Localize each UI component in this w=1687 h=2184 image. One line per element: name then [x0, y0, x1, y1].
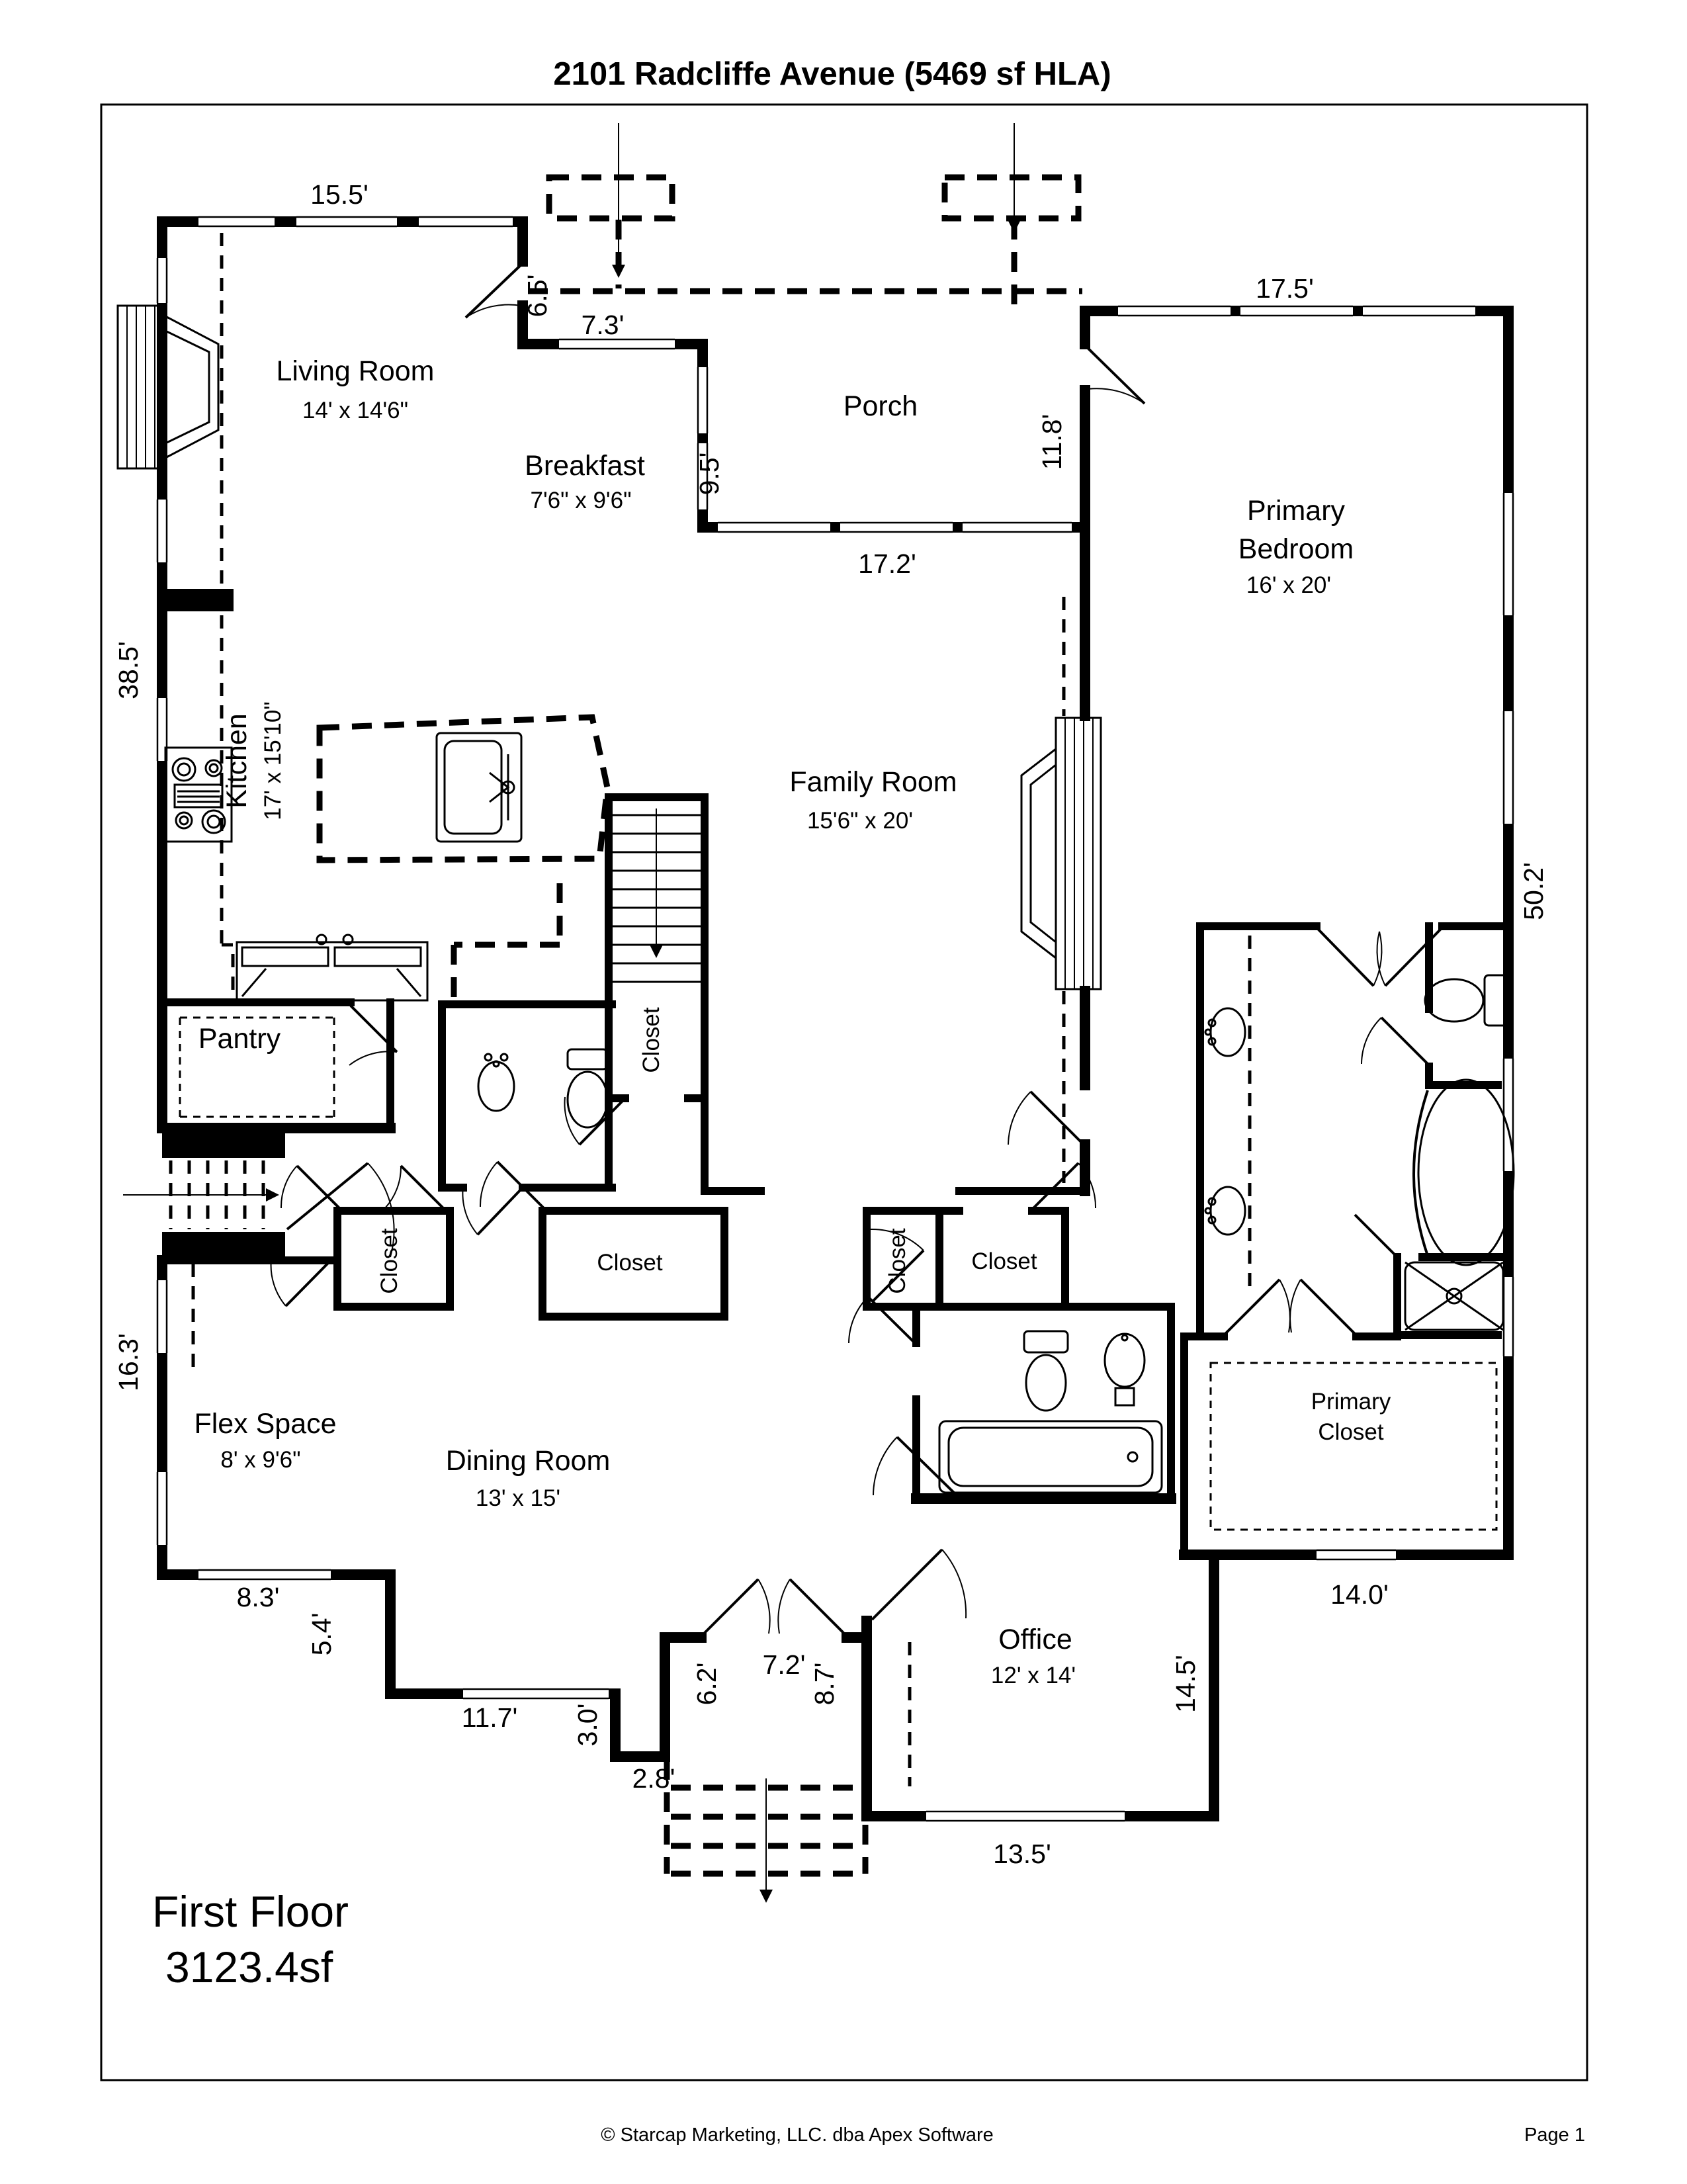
dim-foyer-width: 7.2'	[763, 1649, 806, 1680]
label-porch: Porch	[844, 390, 918, 422]
dim-porch-right: 11.8'	[1037, 414, 1067, 470]
floor-summary-line1: First Floor	[152, 1887, 349, 1936]
label-primary-bedroom-1: Primary	[1247, 495, 1346, 527]
label-closet-office-right: Closet	[971, 1248, 1037, 1274]
label-closet-hall-mid: Closet	[597, 1250, 662, 1276]
family-fireplace-icon	[1021, 718, 1101, 989]
dim-foyer-left: 6.2'	[691, 1663, 722, 1706]
label-dining-dims: 13' x 15'	[476, 1485, 560, 1511]
powder-sink-icon	[478, 1054, 514, 1111]
dim-breakfast-right: 9.5'	[694, 453, 724, 496]
label-office-dims: 12' x 14'	[991, 1663, 1076, 1688]
hallbath-toilet-icon	[1024, 1331, 1068, 1411]
label-kitchen: Kitchen	[221, 713, 253, 808]
dim-entry-jog-vert: 3.0'	[572, 1704, 603, 1747]
label-kitchen-dims: 17' x 15'10"	[260, 701, 286, 820]
doors	[271, 263, 1441, 1635]
label-breakfast-dims: 7'6" x 9'6"	[530, 488, 631, 513]
label-flex-space: Flex Space	[194, 1408, 336, 1440]
windows	[155, 215, 1515, 1823]
dim-bedroom-top: 17.5'	[1256, 273, 1314, 304]
floorplan-page: 2101 Radcliffe Avenue (5469 sf HLA)	[0, 0, 1687, 2184]
label-dining-room: Dining Room	[446, 1445, 611, 1477]
primary-closet-dashed	[1211, 1363, 1496, 1530]
label-living-dims: 14' x 14'6"	[302, 398, 408, 423]
dim-left-lower: 16.3'	[113, 1333, 144, 1391]
page-title: 2101 Radcliffe Avenue (5469 sf HLA)	[553, 56, 1111, 92]
kitchen-sink-icon	[237, 935, 427, 1000]
dim-office-right: 14.5'	[1170, 1655, 1201, 1713]
dim-breakfast-top: 7.3'	[582, 310, 625, 340]
label-closet-hall-left: Closet	[376, 1228, 402, 1293]
hallbath-tub-icon	[939, 1421, 1162, 1493]
label-primary-bedroom-2: Bedroom	[1238, 533, 1354, 565]
living-fireplace-icon	[118, 306, 218, 468]
dim-dining-bottom: 11.7'	[462, 1702, 518, 1733]
label-pantry: Pantry	[198, 1023, 281, 1055]
footer-copyright: © Starcap Marketing, LLC. dba Apex Softw…	[601, 2124, 994, 2146]
dim-office-bottom: 13.5'	[993, 1839, 1051, 1869]
fixtures	[118, 306, 1514, 1530]
dim-living-right: 6.5'	[522, 275, 552, 318]
label-primary-bedroom-dims: 16' x 20'	[1246, 572, 1331, 598]
stairs	[123, 808, 865, 1901]
floor-plan-svg: 2101 Radcliffe Avenue (5469 sf HLA)	[0, 0, 1687, 2184]
floor-summary-line2: 3123.4sf	[165, 1943, 333, 1991]
dim-foyer-right: 8.7'	[809, 1663, 840, 1706]
dim-flex-bottom: 8.3'	[237, 1582, 280, 1612]
label-primary-closet-2: Closet	[1318, 1419, 1383, 1445]
dim-family-top: 17.2'	[858, 548, 916, 579]
primary-tub-icon	[1414, 1080, 1514, 1265]
powder-toilet-icon	[568, 1049, 607, 1127]
label-breakfast: Breakfast	[525, 450, 645, 482]
label-office: Office	[998, 1624, 1072, 1655]
dim-living-top: 15.5'	[310, 179, 368, 210]
dim-right-side: 50.2'	[1518, 862, 1549, 920]
island-icon	[320, 717, 607, 860]
wc-toilet-icon	[1425, 975, 1507, 1026]
hallbath-sink-icon	[1105, 1334, 1145, 1405]
floor-summary: First Floor 3123.4sf	[152, 1887, 349, 1991]
roof-dashed-lines	[528, 123, 1082, 306]
dim-left-upper: 38.5'	[113, 641, 144, 699]
page-footer: © Starcap Marketing, LLC. dba Apex Softw…	[601, 2124, 1585, 2146]
footer-page-number: Page 1	[1524, 2124, 1585, 2146]
label-closet-office-small: Closet	[885, 1228, 910, 1293]
label-closet-under-stairs: Closet	[638, 1007, 664, 1072]
label-family-dims: 15'6" x 20'	[807, 808, 913, 834]
label-primary-closet-1: Primary	[1311, 1389, 1391, 1415]
dim-entry-jog-horiz: 2.8'	[632, 1763, 675, 1794]
dim-jog-left: 5.4'	[306, 1613, 337, 1656]
label-living-room: Living Room	[277, 355, 435, 387]
primary-vanity-sinks	[1205, 1008, 1245, 1235]
dimension-labels: 15.5' 6.5' 7.3' 9.5' 11.8' 17.5' 17.2' 3…	[113, 179, 1549, 1869]
dim-primary-closet-bottom: 14.0'	[1330, 1579, 1389, 1610]
label-family-room: Family Room	[789, 766, 957, 798]
label-flex-dims: 8' x 9'6"	[220, 1447, 300, 1473]
